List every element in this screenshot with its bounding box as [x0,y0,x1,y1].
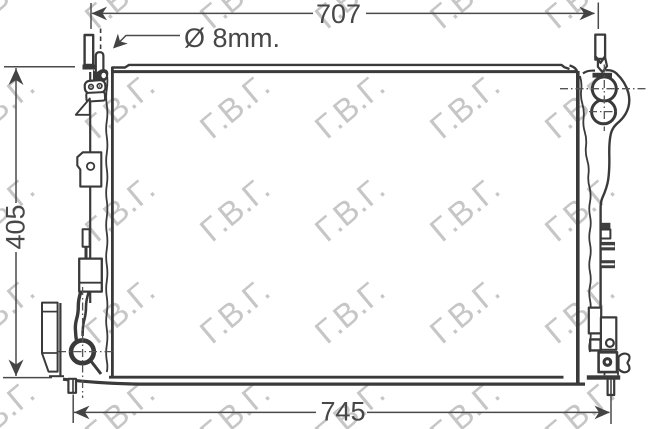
svg-text:Γ.Β.Γ.: Γ.Β.Γ. [0,272,42,351]
svg-text:Γ.Β.Γ.: Γ.Β.Γ. [0,374,42,429]
svg-text:745: 745 [320,397,365,427]
svg-text:Γ.Β.Γ.: Γ.Β.Γ. [0,0,42,36]
svg-text:Γ.Β.Γ.: Γ.Β.Γ. [193,170,277,249]
svg-text:Γ.Β.Γ.: Γ.Β.Γ. [423,170,507,249]
svg-text:Ø 8mm.: Ø 8mm. [184,23,280,53]
svg-text:405: 405 [1,204,31,249]
svg-text:Γ.Β.Γ.: Γ.Β.Γ. [78,0,162,36]
svg-text:Γ.Β.Γ.: Γ.Β.Γ. [193,67,277,146]
svg-text:Γ.Β.Γ.: Γ.Β.Γ. [423,0,507,36]
svg-text:Γ.Β.Γ.: Γ.Β.Γ. [308,272,392,351]
svg-text:Γ.Β.Γ.: Γ.Β.Γ. [423,374,507,429]
svg-text:Γ.Β.Γ.: Γ.Β.Γ. [423,272,507,351]
svg-text:Γ.Β.Γ.: Γ.Β.Γ. [193,272,277,351]
svg-text:Γ.Β.Γ.: Γ.Β.Γ. [538,0,622,36]
svg-text:Γ.Β.Γ.: Γ.Β.Γ. [0,67,42,146]
svg-text:Γ.Β.Γ.: Γ.Β.Γ. [308,67,392,146]
svg-text:707: 707 [316,0,361,29]
svg-text:Γ.Β.Γ.: Γ.Β.Γ. [193,374,277,429]
svg-text:Γ.Β.Γ.: Γ.Β.Γ. [423,67,507,146]
svg-text:Γ.Β.Γ.: Γ.Β.Γ. [308,170,392,249]
